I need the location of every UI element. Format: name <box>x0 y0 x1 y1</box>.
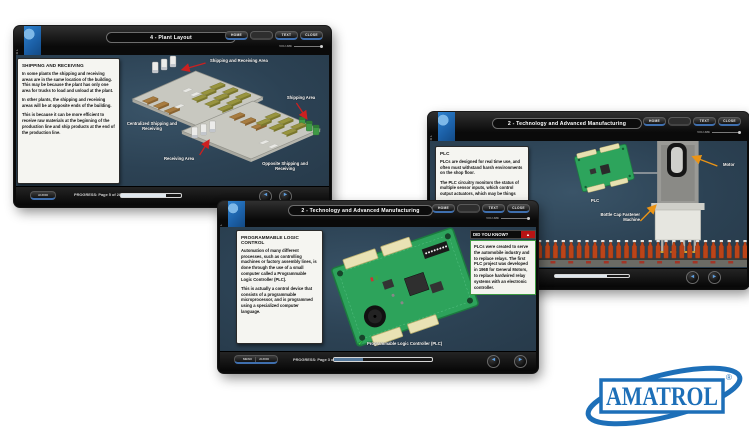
volume-knob[interactable] <box>320 45 323 48</box>
panel-paragraph: In some plants the shipping and receivin… <box>22 71 115 94</box>
lesson-title: 4 - Plant Layout <box>106 32 236 43</box>
amatrol-globe-icon <box>228 201 245 227</box>
did-you-know-alert-icon[interactable]: ▲ <box>521 231 535 238</box>
title-bar: AMATROL 2 - Technology and Advanced Manu… <box>428 112 749 141</box>
machine-housing <box>657 141 698 205</box>
panel-paragraph: This is because it can be more efficient… <box>22 112 115 135</box>
progress-bar <box>554 274 630 278</box>
volume-slider[interactable] <box>712 132 738 133</box>
nav-next-icon: ► <box>712 275 717 281</box>
audio-button[interactable]: AUDIO <box>30 191 56 200</box>
label-centralized: Centralized Shipping and Receiving <box>126 121 178 132</box>
lesson-title: 2 - Technology and Advanced Manufacturin… <box>288 205 433 216</box>
did-you-know-body: PLCs were created to serve the automobil… <box>470 240 536 295</box>
panel-heading: PROGRAMMABLE LOGIC CONTROL <box>241 235 318 245</box>
close-button[interactable]: CLOSE <box>300 31 323 40</box>
plc-board-small <box>574 142 635 194</box>
player-buttons: HOME TEXT CLOSE <box>432 204 530 213</box>
volume-slider[interactable] <box>501 218 527 219</box>
volume-control[interactable]: VOLUME <box>697 130 741 134</box>
title-bar: AMATROL 4 - Plant Layout HOME TEXT CLOSE… <box>14 26 331 55</box>
previous-page-button[interactable]: ◄ <box>686 271 699 284</box>
volume-label: VOLUME <box>697 130 710 134</box>
nav-next-icon: ► <box>283 193 288 199</box>
nav-prev-icon: ◄ <box>491 358 496 364</box>
label-receiving-area: Receiving Area <box>164 156 206 161</box>
registered-mark: ® <box>726 373 732 382</box>
plc-circuit-board <box>330 227 481 351</box>
next-page-button[interactable]: ► <box>708 271 721 284</box>
glossary-button[interactable] <box>668 117 691 126</box>
nav-next-icon: ► <box>518 358 523 364</box>
amatrol-globe-icon <box>438 112 455 141</box>
panel-heading: SHIPPING AND RECEIVING <box>22 63 115 68</box>
menu-button-label: MENU <box>243 357 252 361</box>
audio-button-label: AUDIO <box>259 357 269 361</box>
nav-prev-icon: ◄ <box>690 275 695 281</box>
check-icon: ✔ <box>358 340 363 347</box>
player-buttons: HOME TEXT CLOSE <box>225 31 323 40</box>
screenshot-canvas: AMATROL 4 - Plant Layout HOME TEXT CLOSE… <box>0 0 749 448</box>
close-button[interactable]: CLOSE <box>718 117 741 126</box>
home-button[interactable]: HOME <box>225 31 248 40</box>
home-button[interactable]: HOME <box>432 204 455 213</box>
glossary-button[interactable] <box>457 204 480 213</box>
progress-bar <box>333 357 433 362</box>
panel-paragraph: PLCs are designed for real time use, and… <box>440 159 524 176</box>
label-fastener-machine: Bottle Cap Fastener Machine <box>594 212 640 223</box>
logo-wordmark: AMATROL <box>606 382 718 411</box>
title-bar: AMATROL 2 - Technology and Advanced Manu… <box>218 201 538 227</box>
label-opposite: Opposite Shipping and Receiving <box>256 161 314 172</box>
volume-control[interactable]: VOLUME <box>279 44 323 48</box>
previous-page-button[interactable]: ◄ <box>487 355 500 368</box>
progress-bar <box>120 193 182 198</box>
did-you-know-box[interactable]: DID YOU KNOW? ▲ PLCs were created to ser… <box>470 230 536 295</box>
button-divider <box>255 357 256 362</box>
alert-icon: ▲ <box>526 232 530 237</box>
text-button[interactable]: TEXT <box>275 31 298 40</box>
label-plc: PLC <box>580 198 610 203</box>
label-motor: Motor <box>723 162 747 167</box>
conveyor <box>525 258 747 267</box>
text-button[interactable]: TEXT <box>693 117 716 126</box>
home-button[interactable]: HOME <box>643 117 666 126</box>
lesson-text-panel: SHIPPING AND RECEIVING In some plants th… <box>17 58 120 184</box>
volume-slider[interactable] <box>294 46 320 47</box>
panel-paragraph: Automation of many different processes, … <box>241 248 318 282</box>
volume-label: VOLUME <box>279 44 292 48</box>
panel-heading: PLC <box>440 151 524 156</box>
plc-board-window: AMATROL 2 - Technology and Advanced Manu… <box>218 201 538 373</box>
label-shipping-area: Shipping Area <box>280 95 322 100</box>
amatrol-globe-icon <box>24 26 41 55</box>
did-you-know-title: DID YOU KNOW? <box>473 232 508 237</box>
nav-prev-icon: ◄ <box>263 193 268 199</box>
volume-label: VOLUME <box>486 216 499 220</box>
amatrol-logo-graphic: AMATROL ® <box>580 358 748 434</box>
amatrol-logo: AMATROL ® <box>580 358 748 434</box>
player-buttons: HOME TEXT CLOSE <box>643 117 741 126</box>
panel-paragraph: In other plants, the shipping and receiv… <box>22 97 115 108</box>
audio-button-label: AUDIO <box>38 193 48 197</box>
next-page-button[interactable]: ► <box>514 355 527 368</box>
lesson-text-panel: PROGRAMMABLE LOGIC CONTROL Automation of… <box>236 230 323 344</box>
close-button[interactable]: CLOSE <box>507 204 530 213</box>
volume-control[interactable]: VOLUME <box>486 216 530 220</box>
did-you-know-header[interactable]: DID YOU KNOW? ▲ <box>470 230 536 239</box>
panel-paragraph: This is actually a control device that c… <box>241 286 318 315</box>
text-button[interactable]: TEXT <box>482 204 505 213</box>
lesson-title: 2 - Technology and Advanced Manufacturin… <box>492 118 642 129</box>
lesson-content: Shipping and Receiving Area Centralized … <box>16 55 329 187</box>
label-shipping-receiving-area: Shipping and Receiving Area <box>210 58 300 63</box>
plant-layout-window: AMATROL 4 - Plant Layout HOME TEXT CLOSE… <box>14 26 331 207</box>
volume-knob[interactable] <box>738 131 741 134</box>
bottom-bar: MENU AUDIO PROGRESS: Page 3 of 17 ◄ ► <box>220 351 536 371</box>
glossary-button[interactable] <box>250 31 273 40</box>
lesson-content: ✔ Programmable Logic Controller (PLC) PR… <box>220 227 536 353</box>
progress-label: PROGRESS: Page 5 of 28 <box>74 192 121 197</box>
panel-paragraph: The PLC circuitry monitors the status of… <box>440 180 524 197</box>
bottles-row <box>529 240 747 258</box>
volume-knob[interactable] <box>527 217 530 220</box>
menu-audio-buttons[interactable]: MENU AUDIO <box>234 355 278 364</box>
board-label: Programmable Logic Controller (PLC) <box>367 341 487 346</box>
